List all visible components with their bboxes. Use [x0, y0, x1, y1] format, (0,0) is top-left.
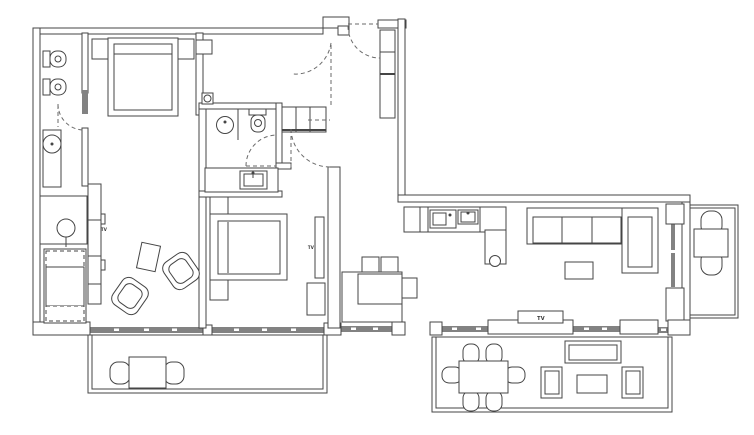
right-wall-bump-top — [666, 204, 684, 224]
lounge-pillow-1 — [362, 257, 379, 272]
sofa-chaise-seat — [628, 217, 652, 267]
window-band-d — [442, 326, 488, 332]
kitchen-sink-basin — [433, 213, 446, 225]
nightstand2-south — [210, 280, 228, 300]
bedroom-1 — [92, 38, 194, 116]
mullion-mark — [584, 328, 589, 331]
coffee-table — [565, 262, 593, 279]
basin — [217, 117, 234, 134]
wardrobe-partition — [88, 184, 101, 304]
kitchen — [404, 207, 506, 267]
bed2-mattress — [218, 221, 280, 274]
mullion-mark — [234, 329, 239, 332]
outdoor-armchair-left-seat — [545, 371, 559, 394]
tv-label-bedroom2: TV — [308, 245, 315, 250]
mullion-mark — [172, 329, 177, 332]
living-top-wall — [398, 195, 690, 202]
left-wall — [33, 28, 40, 328]
lounge-armrest — [402, 278, 417, 298]
bedroom-2 — [210, 197, 325, 315]
mullion-mark — [661, 329, 666, 332]
desk-stool — [57, 219, 75, 237]
toilet-tank — [43, 51, 50, 67]
entrance-door-arc — [348, 26, 380, 58]
toilet-bowl-inner — [55, 56, 61, 62]
mullion-mark — [351, 328, 356, 331]
floor-plan: TVTVTV — [0, 0, 754, 435]
water-heater-dial — [204, 95, 211, 102]
lounge-pillow-2 — [381, 257, 398, 272]
window-band-c — [341, 326, 392, 332]
entrance-step — [338, 26, 349, 35]
mullion-mark — [452, 328, 457, 331]
window-right-wall-a — [671, 224, 675, 250]
daybed-mid — [46, 267, 84, 306]
bath1-wall-north — [82, 33, 88, 93]
balcony-east — [688, 205, 738, 318]
bath1-wall-south — [82, 128, 88, 186]
nightstand2-north — [210, 197, 228, 214]
terrace-right — [432, 337, 672, 412]
balcony-east-table — [694, 229, 728, 257]
window-pier-6 — [620, 320, 658, 334]
right-wall-bump-bottom — [666, 288, 684, 321]
tv-console — [315, 217, 324, 278]
washer-drum-dot — [51, 143, 54, 146]
suite-east-wall — [199, 103, 206, 328]
side-table — [137, 242, 161, 271]
sofa-seat — [533, 217, 621, 243]
mullion-mark — [144, 329, 149, 332]
wardrobe-tab-1 — [101, 214, 105, 224]
wardrobe-tab-2 — [101, 260, 105, 270]
dresser — [307, 283, 325, 315]
living-room — [518, 208, 658, 323]
balcony-chair-right — [164, 362, 184, 384]
hall — [282, 30, 395, 132]
basin-dot — [224, 121, 227, 124]
mullion-mark — [291, 329, 296, 332]
mullion-mark — [602, 328, 607, 331]
bidet-bowl-inner — [55, 84, 61, 90]
top-wall-west — [33, 28, 323, 34]
bath2-door-arc — [246, 135, 277, 166]
bottom-left-corner-wall — [33, 322, 90, 335]
daybed-pillow — [46, 251, 84, 267]
bedroom2-door-arc — [291, 129, 330, 167]
dining-chair-bottom-2 — [486, 391, 502, 411]
bath1-door-arc — [58, 104, 83, 130]
mullion-mark — [262, 329, 267, 332]
bedroom1-wall-pier — [196, 40, 212, 54]
balcony-left — [88, 335, 327, 393]
hall-closet — [282, 107, 326, 132]
kitchen-sink-faucet — [449, 214, 452, 217]
outdoor-bench-seat — [569, 345, 617, 360]
outdoor-armchair-right-seat — [626, 371, 640, 394]
window-pier-7 — [668, 320, 690, 335]
toilet2-bowl-inner — [255, 120, 262, 127]
nightstand-right — [178, 39, 194, 59]
mullion-mark — [476, 328, 481, 331]
floor-plan-canvas: TVTVTV — [0, 0, 754, 435]
dining-nook — [342, 257, 417, 322]
hall-door-arc — [293, 43, 331, 74]
nightstand-left — [92, 39, 108, 59]
kitchen-hob-dot — [467, 212, 470, 215]
mullion-mark — [114, 329, 119, 332]
outdoor-dining-table — [459, 361, 508, 393]
window-right-wall-b — [671, 253, 675, 287]
counter-end-column — [490, 256, 501, 267]
hall-right-wall — [398, 19, 405, 202]
master-sitting — [40, 184, 202, 323]
toilet2-tank — [249, 109, 266, 115]
daybed-foot — [46, 306, 84, 321]
hall-bedroom2-wall — [328, 167, 340, 328]
tv-label-sitting: TV — [101, 227, 108, 232]
window-band-b — [212, 327, 324, 333]
window-band-e — [573, 326, 620, 332]
window-pier-3 — [392, 322, 405, 335]
tv-label-living: TV — [537, 316, 545, 322]
outdoor-side-table — [577, 375, 607, 393]
window-pier-4 — [430, 322, 442, 335]
lounge-chair-seat — [358, 274, 402, 304]
bath2-east-wall — [276, 103, 282, 169]
dining-chair-bottom-1 — [463, 391, 479, 411]
bidet-tank — [43, 79, 50, 95]
bath1-pocket-door — [82, 90, 88, 114]
balcony-table — [129, 357, 166, 388]
mullion-mark — [373, 328, 378, 331]
balcony-chair-left — [110, 362, 130, 384]
